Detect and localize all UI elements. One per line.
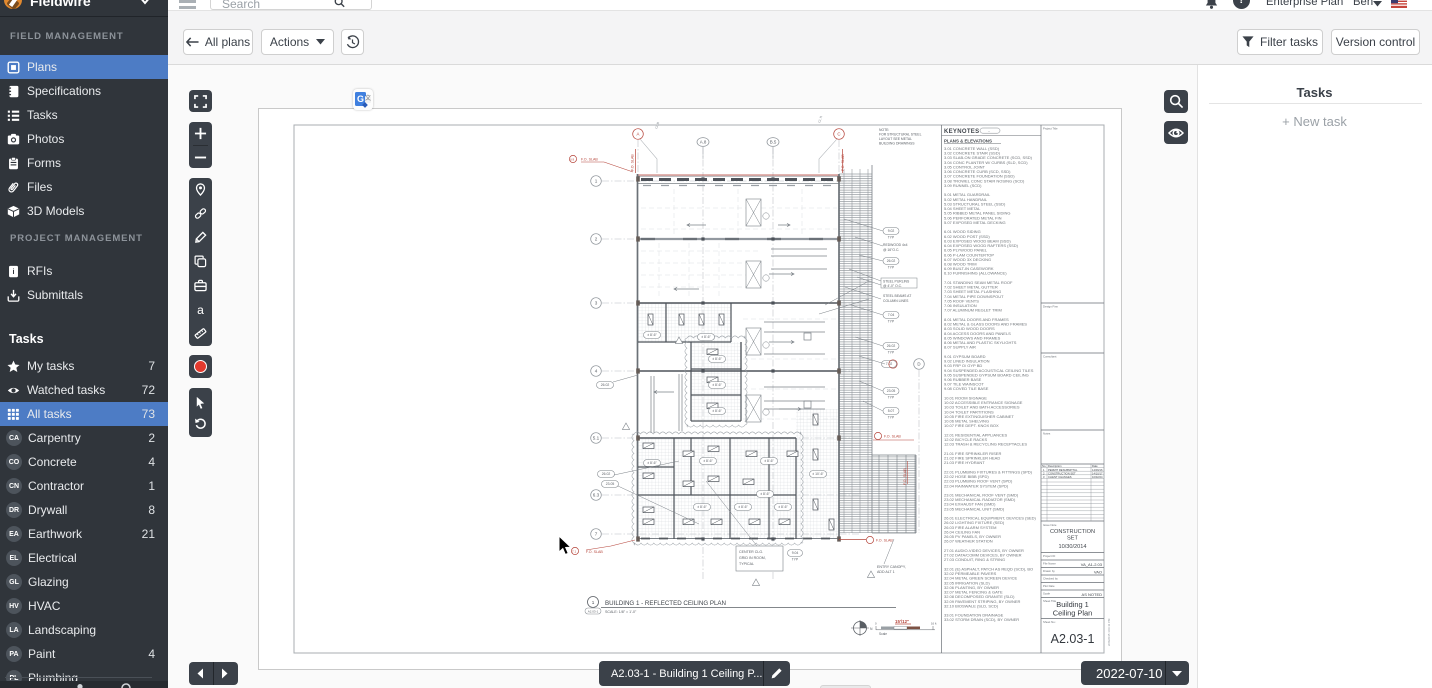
svg-text:26.02: 26.02 bbox=[602, 472, 611, 476]
svg-text:Scale: Scale bbox=[879, 632, 887, 636]
svg-text:i: i bbox=[12, 266, 14, 275]
svg-text:GRID IN ROOM,: GRID IN ROOM, bbox=[739, 556, 766, 560]
svg-text:10/30/2014: 10/30/2014 bbox=[1059, 544, 1087, 550]
svg-text:± 8'-6": ± 8'-6" bbox=[647, 333, 657, 337]
svg-text:VA_A1-2.03: VA_A1-2.03 bbox=[1081, 562, 1103, 567]
svg-text:TYP: TYP bbox=[888, 266, 895, 270]
svg-text:7: 7 bbox=[595, 532, 598, 537]
svg-text:0: 0 bbox=[875, 622, 877, 626]
svg-text:Checked by: Checked by bbox=[1043, 577, 1058, 581]
svg-text:A2.03-1: A2.03-1 bbox=[588, 609, 599, 613]
svg-text:Sheet No.:: Sheet No.: bbox=[1043, 620, 1056, 624]
svg-text:F.O. SLAB: F.O. SLAB bbox=[586, 550, 603, 554]
svg-text:14/09/16: 14/09/16 bbox=[1092, 468, 1103, 472]
svg-text:22.04 RAINWATER SYSTEM (SPD): 22.04 RAINWATER SYSTEM (SPD) bbox=[944, 483, 1009, 488]
svg-text:F.O. SLAB: F.O. SLAB bbox=[903, 468, 907, 485]
svg-text:REDWOOD 4x4: REDWOOD 4x4 bbox=[883, 243, 908, 247]
svg-text:± 8'-6": ± 8'-6" bbox=[712, 383, 722, 387]
svg-text:Notes: Notes bbox=[1043, 432, 1051, 436]
svg-text:26.07 WEATHER STATION: 26.07 WEATHER STATION bbox=[944, 539, 993, 544]
svg-text:9.02: 9.02 bbox=[888, 229, 895, 233]
svg-text:5.07 EXPOSED METAL DECKING: 5.07 EXPOSED METAL DECKING bbox=[944, 220, 1006, 225]
svg-text:NOTE:: NOTE: bbox=[879, 128, 889, 132]
svg-text:PLANS & ELEVATIONS: PLANS & ELEVATIONS bbox=[944, 139, 992, 144]
svg-text:AS NOTED: AS NOTED bbox=[1082, 592, 1103, 597]
svg-text:Scale: Scale bbox=[1043, 592, 1050, 596]
svg-text:@ 4'-0" O.C.: @ 4'-0" O.C. bbox=[883, 284, 902, 288]
svg-text:TYPICAL: TYPICAL bbox=[739, 562, 754, 566]
svg-text:PERMIT RESUBMITTAL: PERMIT RESUBMITTAL bbox=[1048, 468, 1078, 472]
svg-text:F.O. SLAB: F.O. SLAB bbox=[876, 539, 893, 543]
svg-text:KEYNOTES: KEYNOTES bbox=[944, 129, 979, 135]
svg-text:7.04: 7.04 bbox=[888, 313, 895, 317]
svg-text:A2.03-1: A2.03-1 bbox=[1051, 632, 1095, 646]
svg-text:D: D bbox=[917, 362, 920, 367]
svg-text:10.07 FIRE DEPT. KNOX BOX: 10.07 FIRE DEPT. KNOX BOX bbox=[944, 423, 999, 428]
svg-text:0.9: 0.9 bbox=[570, 157, 575, 161]
svg-text:12.03 TRASH & RECYCLING RECEPT: 12.03 TRASH & RECYCLING RECEPTACLES bbox=[944, 442, 1027, 447]
svg-text:10/02/24: 10/02/24 bbox=[1092, 475, 1103, 479]
svg-text:Sheet Title: Sheet Title bbox=[1043, 599, 1057, 603]
svg-text:TYP: TYP bbox=[888, 351, 895, 355]
svg-text:F.O. SLAB: F.O. SLAB bbox=[841, 154, 845, 171]
svg-text:Issue Note: Issue Note bbox=[1043, 523, 1057, 527]
svg-text:Project ID: Project ID bbox=[1043, 554, 1055, 558]
svg-text:26.02: 26.02 bbox=[601, 383, 610, 387]
svg-text:CONSTRUCTION: CONSTRUCTION bbox=[1050, 529, 1095, 535]
svg-text:1: 1 bbox=[595, 179, 598, 184]
svg-text:LAYOUT SEE METAL: LAYOUT SEE METAL bbox=[879, 137, 912, 141]
svg-text:9.04: 9.04 bbox=[792, 551, 799, 555]
svg-text:TYP: TYP bbox=[888, 416, 895, 420]
svg-text:Date: Date bbox=[1092, 464, 1098, 468]
svg-text:TYP: TYP bbox=[888, 236, 895, 240]
svg-text:32.10 BIOSWALE (SLD, SCD): 32.10 BIOSWALE (SLD, SCD) bbox=[944, 603, 999, 608]
svg-text:ENTRY CANOPY,: ENTRY CANOPY, bbox=[877, 565, 906, 569]
svg-text:TYP: TYP bbox=[792, 558, 799, 562]
svg-text:B.5: B.5 bbox=[770, 140, 777, 145]
svg-text:CLIENT CHANGES: CLIENT CHANGES bbox=[1048, 475, 1072, 479]
svg-text:16 ft: 16 ft bbox=[931, 622, 937, 626]
svg-text:BUILDING 1 - REFLECTED CEILING: BUILDING 1 - REFLECTED CEILING PLAN bbox=[605, 600, 726, 607]
svg-text:ADD ALT 1: ADD ALT 1 bbox=[877, 570, 895, 574]
svg-text:2/26/2015 1:06:11 PM: 2/26/2015 1:06:11 PM bbox=[1107, 618, 1111, 646]
svg-text:21.03 FIRE HYDRANT: 21.03 FIRE HYDRANT bbox=[944, 460, 985, 465]
svg-text:23.05: 23.05 bbox=[887, 389, 896, 393]
svg-text:± 8'-6": ± 8'-6" bbox=[703, 459, 713, 463]
svg-text:6.3: 6.3 bbox=[593, 493, 600, 498]
svg-text:Drawn by: Drawn by bbox=[1043, 569, 1055, 573]
svg-text:SET: SET bbox=[1067, 536, 1078, 542]
svg-text:3.09 RUNNEL (SCD): 3.09 RUNNEL (SCD) bbox=[944, 183, 982, 188]
svg-text:26.02: 26.02 bbox=[887, 259, 896, 263]
svg-text:No.: No. bbox=[1042, 464, 1046, 468]
svg-text:@ 16"O.C.: @ 16"O.C. bbox=[883, 248, 899, 252]
svg-text:A.8: A.8 bbox=[700, 140, 707, 145]
svg-text:F.O. SLAB: F.O. SLAB bbox=[581, 158, 598, 162]
svg-text:TYP: TYP bbox=[888, 396, 895, 400]
svg-text:± 8'-6": ± 8'-6" bbox=[647, 461, 657, 465]
svg-text:33.02 STORM DRAIN (SCD), BY OW: 33.02 STORM DRAIN (SCD), BY OWNER bbox=[944, 617, 1019, 622]
svg-text:4: 4 bbox=[595, 369, 598, 374]
svg-text:a: a bbox=[197, 303, 204, 316]
svg-text:Design Firm: Design Firm bbox=[1043, 305, 1059, 309]
svg-text:23.05: 23.05 bbox=[606, 482, 615, 486]
svg-text:F.O. SLAB: F.O. SLAB bbox=[631, 154, 635, 171]
svg-text:Plot Date: Plot Date bbox=[1043, 584, 1055, 588]
svg-text:23.05 MECHANICAL UNIT (SMD): 23.05 MECHANICAL UNIT (SMD) bbox=[944, 506, 1005, 511]
svg-text:C: C bbox=[837, 132, 840, 137]
svg-text:7.07 ALUMINUM REGLET TRIM: 7.07 ALUMINUM REGLET TRIM bbox=[944, 308, 1002, 313]
svg-text:N: N bbox=[870, 627, 873, 631]
svg-text:3: 3 bbox=[595, 301, 598, 306]
svg-text:STEEL BEAMS AT: STEEL BEAMS AT bbox=[883, 294, 911, 298]
svg-text:± 8'-6": ± 8'-6" bbox=[712, 409, 722, 413]
svg-text:COLUMN LINES: COLUMN LINES bbox=[883, 299, 909, 303]
svg-text:8.07 SUPPLY AIR: 8.07 SUPPLY AIR bbox=[944, 345, 976, 350]
svg-text:± 8'-6": ± 8'-6" bbox=[697, 505, 707, 509]
svg-text:1: 1 bbox=[592, 600, 595, 605]
svg-text:± 8'-6": ± 8'-6" bbox=[738, 505, 748, 509]
svg-text:6.10 FURNISHING (ALLOWANCE): 6.10 FURNISHING (ALLOWANCE) bbox=[944, 271, 1007, 276]
svg-text:SCALE: 1/8" = 1'-0": SCALE: 1/8" = 1'-0" bbox=[605, 610, 637, 614]
svg-text:Ceiling Plan: Ceiling Plan bbox=[1053, 609, 1092, 618]
svg-text:Description: Description bbox=[1048, 464, 1062, 468]
svg-text:± 8'-6": ± 8'-6" bbox=[778, 505, 788, 509]
svg-text:± 8'-6": ± 8'-6" bbox=[764, 459, 774, 463]
svg-text:Consultant: Consultant bbox=[1043, 355, 1057, 359]
svg-text:2: 2 bbox=[595, 237, 598, 242]
svg-text:A: A bbox=[637, 132, 640, 137]
svg-text:5.1: 5.1 bbox=[593, 436, 600, 441]
svg-text:± 10'-6": ± 10'-6" bbox=[812, 472, 824, 476]
svg-text:15'\12": 15'\12" bbox=[895, 619, 909, 624]
svg-text:BUILDING DRAWINGS: BUILDING DRAWINGS bbox=[879, 142, 915, 146]
svg-text:TYP: TYP bbox=[888, 320, 895, 324]
svg-text:CENTER CLG.: CENTER CLG. bbox=[739, 550, 763, 554]
svg-text:CONSTRUCTION SET: CONSTRUCTION SET bbox=[1048, 471, 1076, 475]
svg-text:STEEL PURLINS: STEEL PURLINS bbox=[883, 280, 910, 284]
svg-text:File Name: File Name bbox=[1043, 562, 1056, 566]
svg-text:± 8'-6": ± 8'-6" bbox=[701, 335, 711, 339]
svg-text:± 8'-6": ± 8'-6" bbox=[760, 492, 770, 496]
svg-text:VAO: VAO bbox=[1094, 570, 1102, 575]
svg-text:--: -- bbox=[988, 129, 990, 133]
svg-text:27.03 CONDUIT, RING & STRING: 27.03 CONDUIT, RING & STRING bbox=[944, 557, 1005, 562]
svg-text:F.O. SLAB: F.O. SLAB bbox=[884, 435, 901, 439]
svg-text:26.02: 26.02 bbox=[887, 344, 896, 348]
svg-text:5.07: 5.07 bbox=[888, 409, 895, 413]
svg-text:CL R: CL R bbox=[817, 115, 823, 124]
svg-text:FOR STRUCTURAL STEEL: FOR STRUCTURAL STEEL bbox=[879, 133, 922, 137]
svg-text:14/10/17: 14/10/17 bbox=[1092, 471, 1103, 475]
svg-text:9.08 COVED TILE BASE: 9.08 COVED TILE BASE bbox=[944, 386, 989, 391]
svg-text:Project Title: Project Title bbox=[1043, 127, 1058, 131]
svg-text:± 8'-6": ± 8'-6" bbox=[712, 357, 722, 361]
